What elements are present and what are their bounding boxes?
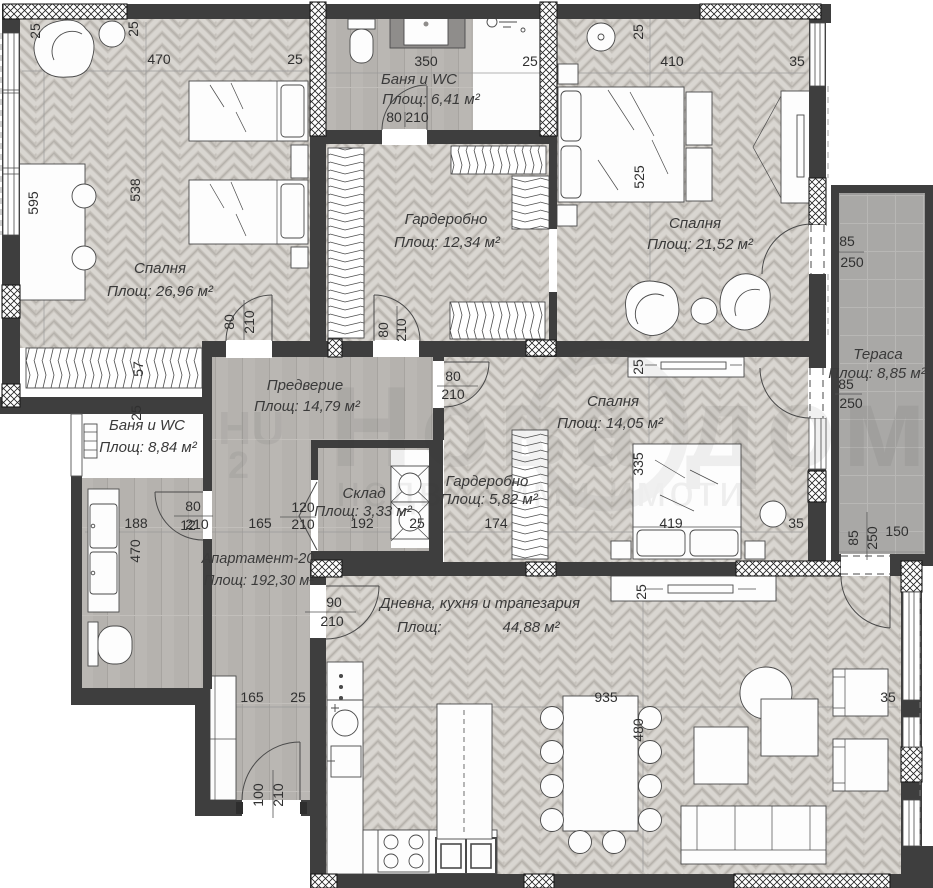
svg-text:25: 25: [633, 584, 649, 600]
svg-text:25: 25: [290, 689, 306, 705]
svg-text:210: 210: [320, 613, 344, 629]
svg-text:538: 538: [127, 178, 143, 202]
svg-text:210: 210: [291, 516, 315, 532]
svg-text:Спалня: Спалня: [669, 215, 721, 232]
svg-text:80: 80: [185, 498, 201, 514]
svg-text:25: 25: [128, 405, 144, 421]
svg-text:174: 174: [484, 515, 508, 531]
svg-text:Площ: 21,52 м²: Площ: 21,52 м²: [647, 236, 754, 253]
svg-text:Площ: 26,96 м²: Площ: 26,96 м²: [107, 283, 214, 300]
svg-text:35: 35: [789, 53, 805, 69]
svg-text:419: 419: [659, 515, 683, 531]
svg-text:100: 100: [250, 783, 266, 807]
svg-text:935: 935: [594, 689, 618, 705]
svg-text:Спалня: Спалня: [134, 260, 186, 277]
svg-text:35: 35: [788, 515, 804, 531]
svg-text:210: 210: [241, 310, 257, 334]
svg-text:350: 350: [414, 53, 438, 69]
svg-text:250: 250: [840, 254, 864, 270]
svg-text:Тераса: Тераса: [853, 346, 903, 363]
svg-text:25: 25: [27, 23, 43, 39]
svg-text:410: 410: [660, 53, 684, 69]
svg-text:25: 25: [409, 515, 425, 531]
svg-text:Гардеробно: Гардеробно: [405, 211, 488, 228]
svg-text:Площ: 8,84 м²: Площ: 8,84 м²: [99, 439, 197, 456]
svg-text:480: 480: [630, 718, 646, 742]
svg-text:85: 85: [839, 233, 855, 249]
svg-text:165: 165: [248, 515, 272, 531]
svg-text:44,88 м²: 44,88 м²: [503, 619, 561, 636]
svg-text:150: 150: [885, 523, 909, 539]
svg-text:25: 25: [630, 24, 646, 40]
svg-text:120: 120: [291, 499, 315, 515]
svg-text:470: 470: [147, 51, 171, 67]
svg-text:470: 470: [127, 539, 143, 563]
svg-text:25: 25: [125, 21, 141, 37]
svg-text:Площ:: Площ:: [397, 619, 442, 636]
svg-text:192: 192: [350, 515, 374, 531]
svg-text:210: 210: [393, 318, 409, 342]
svg-text:210: 210: [185, 516, 209, 532]
svg-text:210: 210: [270, 783, 286, 807]
svg-text:80: 80: [375, 322, 391, 338]
svg-text:188: 188: [124, 515, 148, 531]
svg-text:250: 250: [864, 526, 880, 550]
svg-text:Площ: 192,30 м²: Площ: 192,30 м²: [204, 573, 315, 589]
svg-text:80: 80: [386, 109, 402, 125]
svg-text:595: 595: [25, 191, 41, 215]
svg-text:57: 57: [130, 361, 146, 377]
svg-text:525: 525: [631, 165, 647, 189]
svg-text:недвижими имоти: недвижими имоти: [336, 467, 747, 516]
svg-text:Апартамент-20: Апартамент-20: [201, 551, 315, 567]
svg-text:165: 165: [240, 689, 264, 705]
svg-text:Баня и WC: Баня и WC: [109, 417, 185, 434]
svg-text:85: 85: [845, 530, 861, 546]
svg-text:80: 80: [221, 314, 237, 330]
svg-text:90: 90: [326, 594, 342, 610]
svg-text:210: 210: [405, 109, 429, 125]
svg-text:Площ: 12,34 м²: Площ: 12,34 м²: [394, 234, 501, 251]
svg-text:Площ: 6,41 м²: Площ: 6,41 м²: [382, 91, 480, 108]
svg-text:35: 35: [880, 689, 896, 705]
svg-text:Дневна, кухня и трапезария: Дневна, кухня и трапезария: [378, 595, 580, 612]
svg-text:2: 2: [228, 445, 249, 487]
svg-text:25: 25: [287, 51, 303, 67]
svg-text:25: 25: [522, 53, 538, 69]
svg-text:Баня и WC: Баня и WC: [381, 71, 457, 88]
